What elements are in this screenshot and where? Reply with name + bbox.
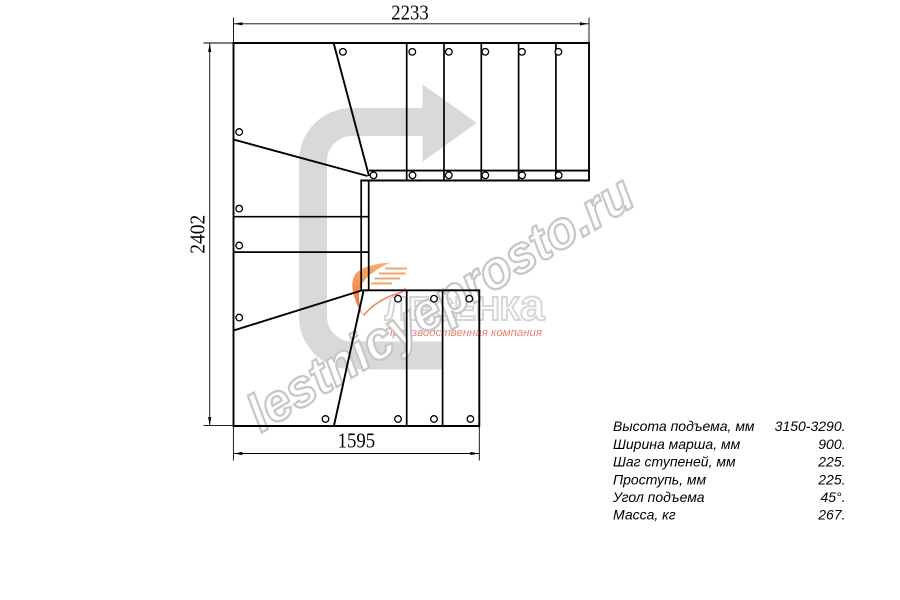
- svg-text:2233: 2233: [391, 1, 429, 25]
- svg-text:Шаг ступеней, мм: Шаг ступеней, мм: [613, 454, 736, 470]
- svg-text:Высота подъема, мм: Высота подъема, мм: [613, 418, 755, 434]
- svg-text:900.: 900.: [818, 436, 845, 452]
- svg-text:2402: 2402: [186, 215, 210, 254]
- svg-text:267.: 267.: [817, 507, 845, 523]
- svg-text:225.: 225.: [817, 471, 845, 487]
- svg-text:225.: 225.: [817, 454, 845, 470]
- svg-text:3150-3290.: 3150-3290.: [775, 418, 846, 434]
- svg-text:Проступь, мм: Проступь, мм: [613, 471, 707, 487]
- svg-text:Ширина марша, мм: Ширина марша, мм: [613, 436, 741, 452]
- svg-text:1595: 1595: [338, 429, 376, 453]
- svg-text:Масса, кг: Масса, кг: [613, 507, 676, 523]
- svg-text:Угол подъема: Угол подъема: [612, 489, 705, 505]
- svg-text:45°.: 45°.: [820, 489, 845, 505]
